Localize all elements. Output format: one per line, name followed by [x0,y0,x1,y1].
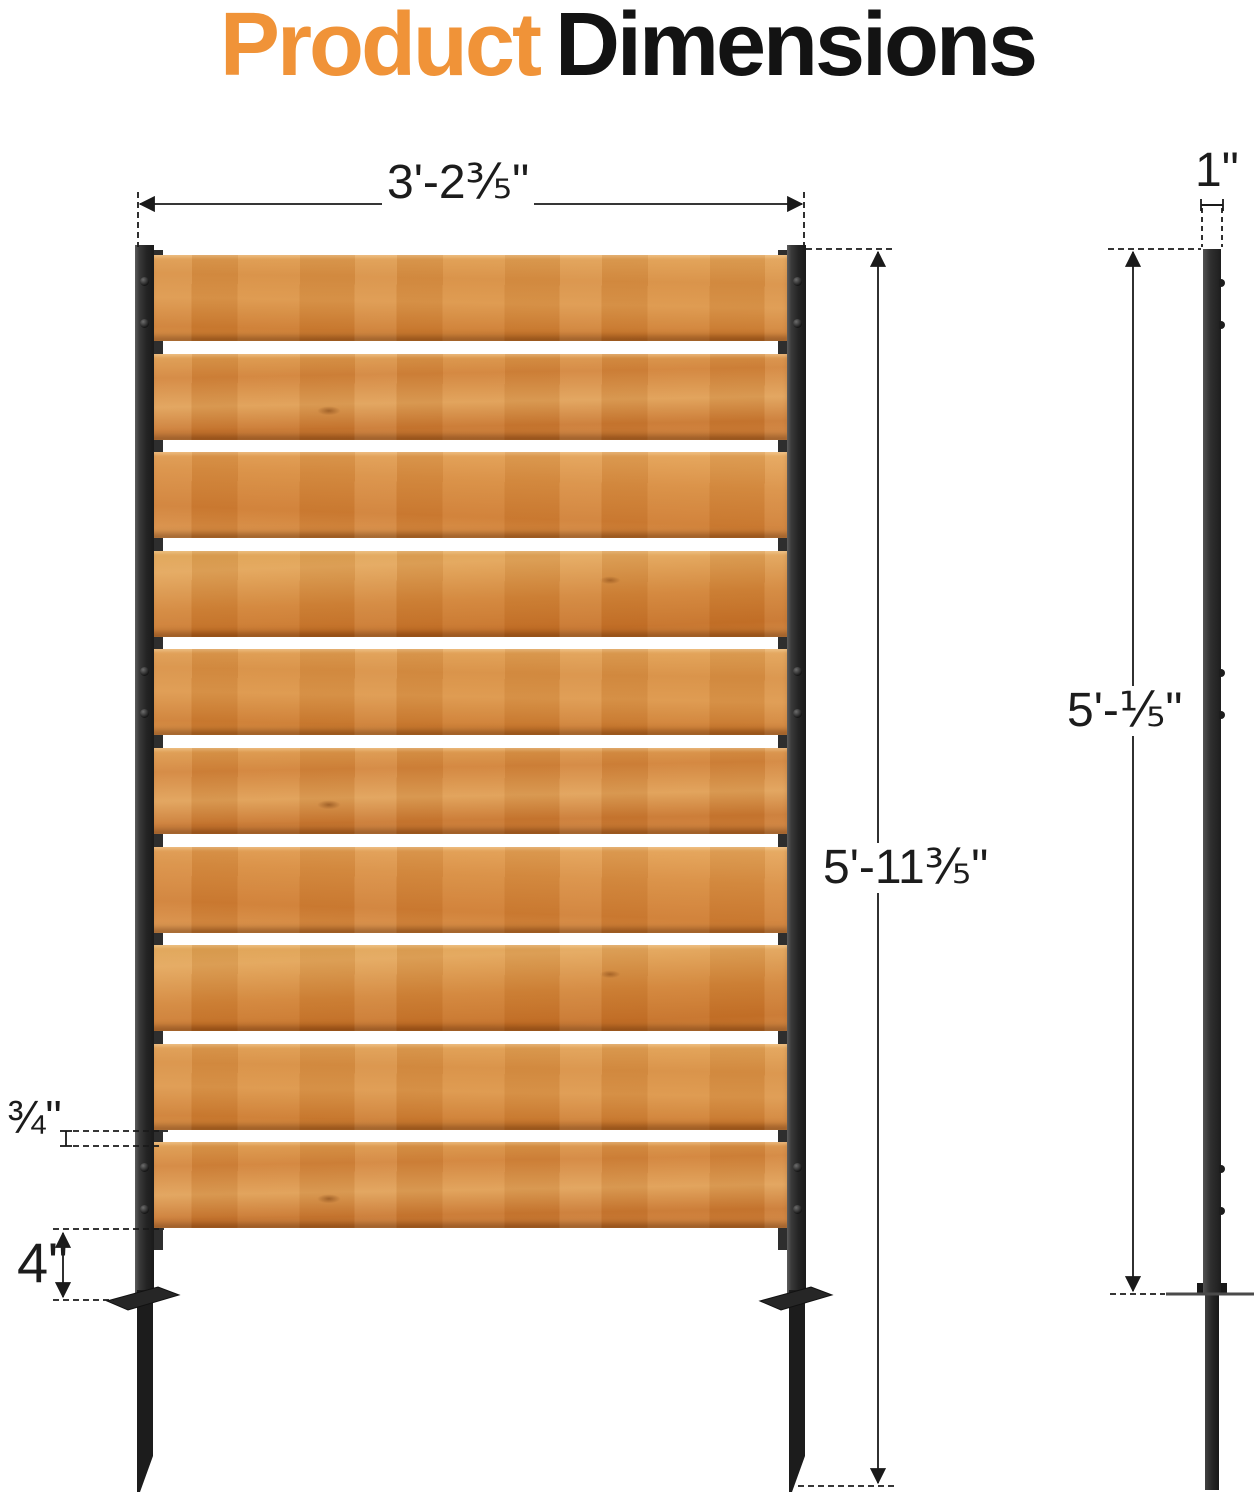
post-width-dimension [1201,199,1223,247]
stake-exposed-dimension-label: 4" [12,1234,73,1292]
overall-height-dimension-label: 5'-11⅗" [818,843,993,893]
width-dimension-label: 3'-2⅗" [382,158,534,208]
product-dimensions-figure: ProductDimensions [0,0,1255,1500]
post-width-dimension-label: 1" [1190,146,1244,196]
slat-gap-dimension [60,1131,168,1146]
left-ground-stake [137,1290,153,1492]
post-height-dimension [1108,249,1201,1294]
right-ground-stake [789,1290,805,1492]
post-height-dimension-label: 5'-⅕" [1062,686,1187,736]
dimension-lines-layer [0,0,1255,1500]
slat-gap-dimension-label: ¾" [2,1094,67,1142]
